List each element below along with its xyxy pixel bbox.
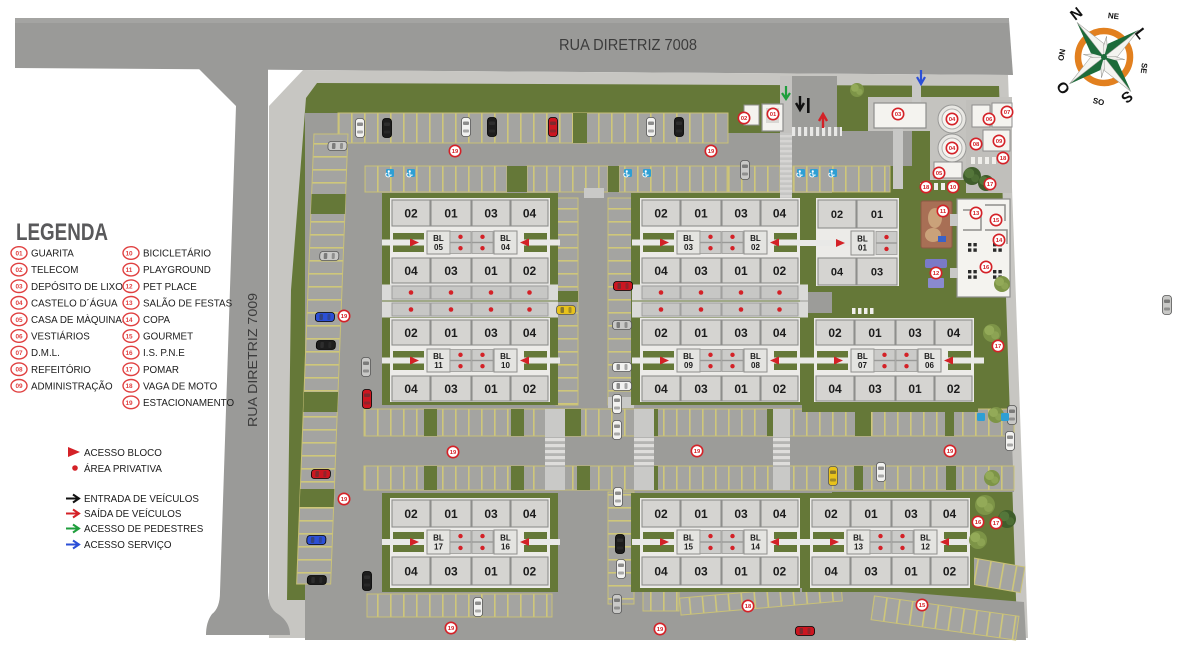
svg-text:02: 02 bbox=[404, 326, 418, 340]
svg-text:BL: BL bbox=[433, 534, 444, 543]
svg-text:01: 01 bbox=[444, 206, 458, 220]
svg-text:SALÃO DE FESTAS: SALÃO DE FESTAS bbox=[143, 298, 233, 309]
svg-text:01: 01 bbox=[770, 112, 777, 118]
svg-text:02: 02 bbox=[828, 326, 842, 340]
svg-text:12: 12 bbox=[125, 284, 133, 291]
svg-text:BL: BL bbox=[750, 234, 761, 243]
svg-text:04: 04 bbox=[501, 243, 510, 252]
svg-text:BL: BL bbox=[750, 352, 761, 361]
svg-text:I.S. P.N.E: I.S. P.N.E bbox=[143, 348, 185, 359]
svg-text:07: 07 bbox=[858, 361, 867, 370]
svg-text:BL: BL bbox=[433, 234, 444, 243]
svg-text:03: 03 bbox=[444, 564, 458, 578]
svg-text:15: 15 bbox=[919, 603, 926, 609]
svg-text:04: 04 bbox=[949, 117, 956, 123]
svg-text:01: 01 bbox=[871, 209, 883, 221]
svg-text:BL: BL bbox=[683, 352, 694, 361]
svg-text:CASTELO D´ÁGUA: CASTELO D´ÁGUA bbox=[31, 298, 118, 309]
svg-text:06: 06 bbox=[986, 117, 993, 123]
svg-text:17: 17 bbox=[995, 344, 1002, 350]
svg-text:16: 16 bbox=[125, 350, 133, 357]
svg-text:01: 01 bbox=[444, 326, 458, 340]
svg-text:04: 04 bbox=[404, 264, 418, 278]
svg-text:03: 03 bbox=[694, 564, 708, 578]
svg-text:02: 02 bbox=[943, 564, 957, 578]
svg-text:02: 02 bbox=[831, 209, 843, 221]
svg-text:13: 13 bbox=[125, 300, 133, 307]
svg-text:08: 08 bbox=[15, 367, 23, 374]
svg-text:REFEITÓRIO: REFEITÓRIO bbox=[31, 365, 91, 376]
svg-text:BL: BL bbox=[433, 352, 444, 361]
svg-text:TELECOM: TELECOM bbox=[31, 265, 78, 276]
svg-text:17: 17 bbox=[987, 182, 994, 188]
svg-text:SAÍDA DE VEÍCULOS: SAÍDA DE VEÍCULOS bbox=[84, 509, 182, 520]
svg-text:03: 03 bbox=[684, 243, 693, 252]
svg-text:16: 16 bbox=[983, 265, 990, 271]
svg-text:04: 04 bbox=[654, 264, 668, 278]
svg-text:ESTACIONAMENTO: ESTACIONAMENTO bbox=[143, 398, 234, 409]
svg-text:04: 04 bbox=[15, 300, 23, 307]
svg-text:PET PLACE: PET PLACE bbox=[143, 282, 197, 293]
svg-text:03: 03 bbox=[908, 326, 922, 340]
svg-text:15: 15 bbox=[993, 218, 1000, 224]
svg-text:03: 03 bbox=[484, 507, 498, 521]
svg-text:02: 02 bbox=[773, 564, 787, 578]
svg-text:18: 18 bbox=[1000, 156, 1007, 162]
svg-text:10: 10 bbox=[950, 185, 957, 191]
svg-text:19: 19 bbox=[448, 626, 455, 632]
svg-text:04: 04 bbox=[654, 382, 668, 396]
svg-text:19: 19 bbox=[125, 400, 133, 407]
svg-text:13: 13 bbox=[854, 543, 863, 552]
svg-text:13: 13 bbox=[973, 211, 980, 217]
svg-text:01: 01 bbox=[734, 264, 748, 278]
svg-text:02: 02 bbox=[751, 243, 760, 252]
svg-text:02: 02 bbox=[523, 564, 537, 578]
svg-text:02: 02 bbox=[773, 382, 787, 396]
svg-text:03: 03 bbox=[734, 326, 748, 340]
svg-text:19: 19 bbox=[341, 314, 348, 320]
svg-text:04: 04 bbox=[523, 507, 537, 521]
svg-text:03: 03 bbox=[871, 266, 883, 278]
svg-text:ACESSO DE PEDESTRES: ACESSO DE PEDESTRES bbox=[84, 524, 204, 535]
svg-text:16: 16 bbox=[975, 520, 982, 526]
svg-text:15: 15 bbox=[125, 333, 133, 340]
svg-text:11: 11 bbox=[940, 209, 947, 215]
svg-text:01: 01 bbox=[484, 564, 498, 578]
svg-text:ENTRADA DE VEÍCULOS: ENTRADA DE VEÍCULOS bbox=[84, 494, 199, 505]
svg-text:03: 03 bbox=[444, 382, 458, 396]
svg-text:BL: BL bbox=[683, 534, 694, 543]
svg-text:19: 19 bbox=[450, 450, 457, 456]
svg-text:VAGA DE MOTO: VAGA DE MOTO bbox=[143, 381, 218, 392]
svg-text:03: 03 bbox=[895, 112, 902, 118]
svg-text:05: 05 bbox=[434, 243, 443, 252]
svg-text:04: 04 bbox=[773, 206, 787, 220]
svg-text:02: 02 bbox=[654, 507, 668, 521]
svg-text:PLAYGROUND: PLAYGROUND bbox=[143, 265, 211, 276]
svg-text:06: 06 bbox=[925, 361, 934, 370]
svg-text:17: 17 bbox=[125, 367, 133, 374]
svg-text:02: 02 bbox=[404, 206, 418, 220]
svg-text:10: 10 bbox=[125, 250, 133, 257]
svg-text:01: 01 bbox=[868, 326, 882, 340]
svg-text:02: 02 bbox=[15, 267, 23, 274]
svg-text:03: 03 bbox=[484, 326, 498, 340]
svg-text:04: 04 bbox=[404, 564, 418, 578]
svg-text:ACESSO SERVIÇO: ACESSO SERVIÇO bbox=[84, 540, 172, 551]
svg-text:BL: BL bbox=[500, 352, 511, 361]
svg-text:06: 06 bbox=[15, 333, 23, 340]
svg-text:04: 04 bbox=[773, 326, 787, 340]
svg-text:01: 01 bbox=[734, 382, 748, 396]
svg-text:03: 03 bbox=[904, 507, 918, 521]
svg-text:02: 02 bbox=[654, 326, 668, 340]
svg-text:BL: BL bbox=[500, 234, 511, 243]
svg-text:03: 03 bbox=[868, 382, 882, 396]
svg-text:04: 04 bbox=[773, 507, 787, 521]
svg-text:VESTIÁRIOS: VESTIÁRIOS bbox=[31, 332, 90, 343]
svg-text:05: 05 bbox=[936, 171, 943, 177]
svg-text:01: 01 bbox=[694, 507, 708, 521]
svg-text:04: 04 bbox=[947, 326, 961, 340]
svg-text:08: 08 bbox=[751, 361, 760, 370]
svg-text:01: 01 bbox=[484, 264, 498, 278]
svg-text:17: 17 bbox=[993, 521, 1000, 527]
svg-text:D.M.L.: D.M.L. bbox=[31, 348, 60, 359]
svg-text:BL: BL bbox=[683, 234, 694, 243]
svg-text:03: 03 bbox=[444, 264, 458, 278]
svg-text:BL: BL bbox=[920, 534, 931, 543]
svg-text:BL: BL bbox=[924, 352, 935, 361]
svg-text:18: 18 bbox=[125, 383, 133, 390]
svg-text:LEGENDA: LEGENDA bbox=[16, 219, 108, 246]
svg-text:04: 04 bbox=[523, 206, 537, 220]
svg-text:04: 04 bbox=[824, 564, 838, 578]
svg-text:01: 01 bbox=[444, 507, 458, 521]
svg-text:19: 19 bbox=[708, 149, 715, 155]
svg-text:02: 02 bbox=[947, 382, 961, 396]
svg-text:05: 05 bbox=[15, 317, 23, 324]
svg-text:03: 03 bbox=[15, 284, 23, 291]
svg-text:01: 01 bbox=[904, 564, 918, 578]
svg-text:03: 03 bbox=[484, 206, 498, 220]
svg-text:BL: BL bbox=[750, 534, 761, 543]
svg-text:18: 18 bbox=[745, 604, 752, 610]
svg-text:11: 11 bbox=[126, 267, 133, 274]
svg-text:04: 04 bbox=[828, 382, 842, 396]
svg-text:17: 17 bbox=[434, 543, 443, 552]
svg-text:07: 07 bbox=[1004, 110, 1011, 116]
svg-text:01: 01 bbox=[694, 206, 708, 220]
svg-text:12: 12 bbox=[921, 543, 930, 552]
svg-text:11: 11 bbox=[434, 361, 443, 370]
svg-text:19: 19 bbox=[341, 497, 348, 503]
svg-text:04: 04 bbox=[654, 564, 668, 578]
svg-text:02: 02 bbox=[523, 382, 537, 396]
svg-text:CASA DE MÀQUINAS: CASA DE MÀQUINAS bbox=[31, 315, 129, 326]
svg-text:04: 04 bbox=[523, 326, 537, 340]
svg-text:01: 01 bbox=[864, 507, 878, 521]
svg-text:RUA DIRETRIZ 7008: RUA DIRETRIZ 7008 bbox=[559, 37, 697, 54]
svg-text:12: 12 bbox=[933, 271, 940, 277]
svg-text:BL: BL bbox=[857, 235, 868, 244]
svg-text:02: 02 bbox=[654, 206, 668, 220]
svg-text:ÁREA PRIVATIVA: ÁREA PRIVATIVA bbox=[84, 464, 162, 475]
svg-text:NE: NE bbox=[1107, 11, 1120, 21]
svg-text:03: 03 bbox=[734, 507, 748, 521]
svg-text:02: 02 bbox=[523, 264, 537, 278]
svg-text:GUARITA: GUARITA bbox=[31, 249, 74, 260]
svg-text:02: 02 bbox=[824, 507, 838, 521]
svg-text:04: 04 bbox=[943, 507, 957, 521]
svg-text:19: 19 bbox=[452, 149, 459, 155]
svg-text:BL: BL bbox=[500, 534, 511, 543]
svg-text:09: 09 bbox=[996, 139, 1003, 145]
svg-text:BL: BL bbox=[857, 352, 868, 361]
svg-text:01: 01 bbox=[858, 244, 867, 253]
svg-text:ADMINISTRAÇÃO: ADMINISTRAÇÃO bbox=[31, 381, 113, 392]
svg-text:BL: BL bbox=[853, 534, 864, 543]
svg-text:03: 03 bbox=[734, 206, 748, 220]
svg-text:ACESSO BLOCO: ACESSO BLOCO bbox=[84, 448, 162, 459]
svg-text:01: 01 bbox=[15, 250, 23, 257]
svg-text:01: 01 bbox=[694, 326, 708, 340]
svg-text:04: 04 bbox=[404, 382, 418, 396]
svg-text:01: 01 bbox=[484, 382, 498, 396]
svg-text:02: 02 bbox=[404, 507, 418, 521]
svg-text:04: 04 bbox=[831, 266, 844, 278]
svg-text:01: 01 bbox=[908, 382, 922, 396]
svg-text:03: 03 bbox=[864, 564, 878, 578]
svg-text:POMAR: POMAR bbox=[143, 365, 179, 376]
svg-text:07: 07 bbox=[15, 350, 23, 357]
svg-text:SE: SE bbox=[1139, 62, 1149, 74]
svg-text:02: 02 bbox=[773, 264, 787, 278]
svg-text:09: 09 bbox=[15, 383, 23, 390]
svg-text:16: 16 bbox=[501, 543, 510, 552]
svg-text:14: 14 bbox=[125, 317, 133, 324]
svg-text:RUA DIRETRIZ 7009: RUA DIRETRIZ 7009 bbox=[245, 293, 260, 427]
svg-text:COPA: COPA bbox=[143, 315, 171, 326]
svg-text:GOURMET: GOURMET bbox=[143, 332, 193, 343]
svg-text:19: 19 bbox=[657, 627, 664, 633]
svg-text:03: 03 bbox=[694, 382, 708, 396]
svg-text:10: 10 bbox=[501, 361, 510, 370]
svg-text:15: 15 bbox=[684, 543, 693, 552]
svg-text:02: 02 bbox=[741, 116, 748, 122]
svg-text:19: 19 bbox=[694, 449, 701, 455]
svg-text:03: 03 bbox=[694, 264, 708, 278]
svg-text:DEPÓSITO DE LIXO: DEPÓSITO DE LIXO bbox=[31, 282, 123, 293]
svg-text:14: 14 bbox=[751, 543, 760, 552]
svg-text:09: 09 bbox=[684, 361, 693, 370]
svg-text:04: 04 bbox=[949, 146, 956, 152]
svg-text:18: 18 bbox=[923, 185, 930, 191]
svg-text:19: 19 bbox=[947, 449, 954, 455]
svg-text:14: 14 bbox=[996, 238, 1003, 244]
svg-text:BICICLETÁRIO: BICICLETÁRIO bbox=[143, 249, 211, 260]
svg-text:01: 01 bbox=[734, 564, 748, 578]
svg-text:08: 08 bbox=[973, 142, 980, 148]
